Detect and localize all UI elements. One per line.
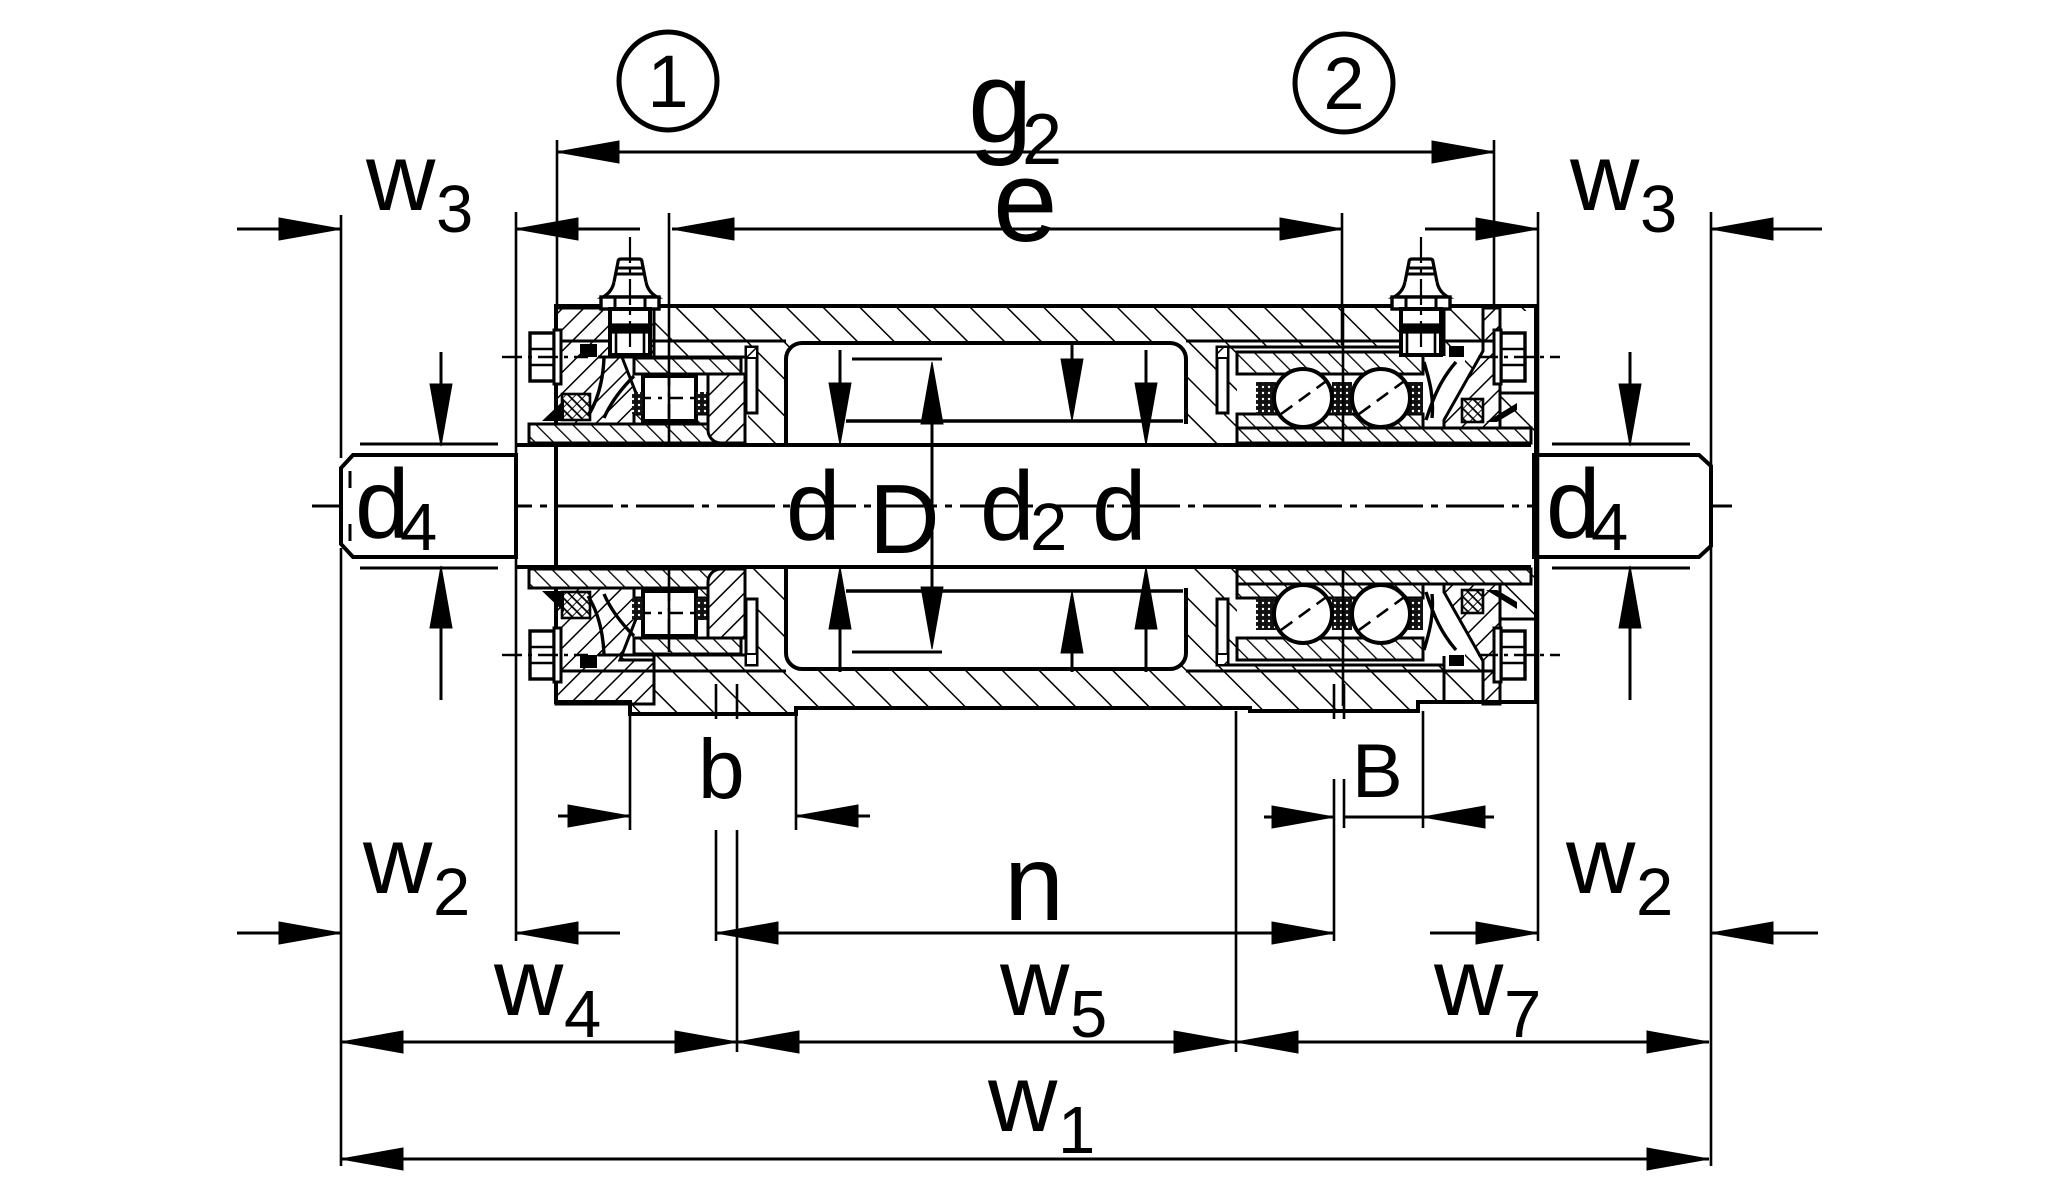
svg-text:2: 2	[1636, 855, 1673, 930]
svg-text:w: w	[1569, 124, 1640, 231]
svg-text:w: w	[365, 124, 436, 231]
svg-text:e: e	[993, 136, 1058, 266]
svg-text:5: 5	[1070, 977, 1107, 1052]
svg-text:2: 2	[1323, 42, 1364, 125]
svg-text:d: d	[786, 451, 841, 561]
svg-text:w: w	[999, 929, 1070, 1036]
svg-text:2: 2	[1030, 490, 1067, 565]
svg-text:4: 4	[564, 977, 601, 1052]
svg-text:3: 3	[1640, 172, 1677, 247]
svg-text:1: 1	[647, 40, 688, 123]
svg-text:n: n	[1004, 822, 1064, 943]
svg-text:4: 4	[1591, 490, 1628, 565]
svg-text:d: d	[1092, 451, 1147, 561]
svg-text:2: 2	[433, 855, 470, 930]
svg-text:w: w	[1565, 807, 1636, 914]
svg-text:d: d	[980, 451, 1035, 561]
svg-text:7: 7	[1504, 977, 1541, 1052]
svg-text:1: 1	[1058, 1093, 1095, 1168]
svg-text:B: B	[1352, 729, 1403, 814]
svg-text:3: 3	[436, 172, 473, 247]
svg-text:w: w	[1433, 929, 1504, 1036]
svg-text:w: w	[362, 807, 433, 914]
svg-text:w: w	[493, 929, 564, 1036]
svg-text:w: w	[987, 1045, 1058, 1152]
svg-text:D: D	[869, 464, 940, 574]
svg-text:4: 4	[400, 490, 437, 565]
svg-text:b: b	[698, 722, 745, 816]
